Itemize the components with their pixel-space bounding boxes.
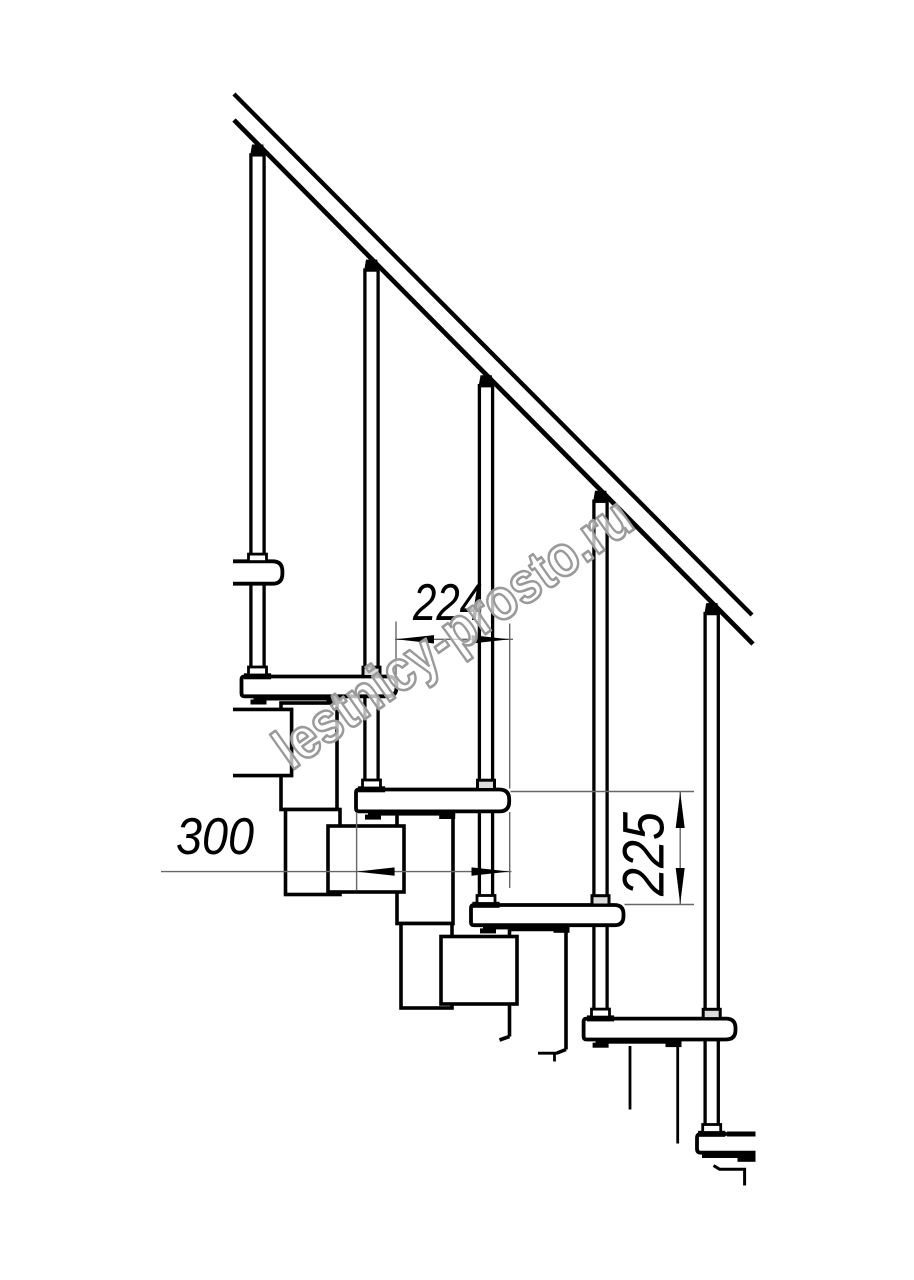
svg-text:300: 300 xyxy=(176,808,254,866)
svg-text:225: 225 xyxy=(612,811,677,897)
